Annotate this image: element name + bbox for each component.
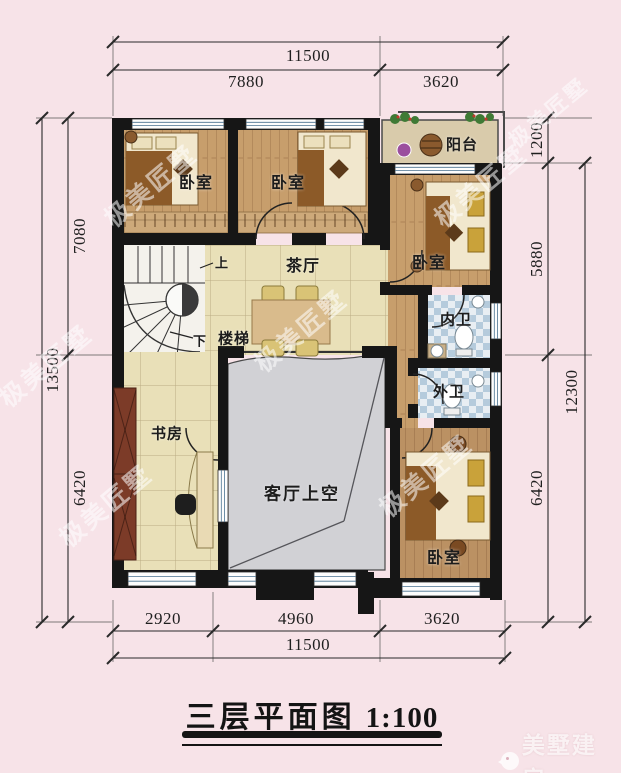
room-label-bedroom-right: 卧室 — [412, 249, 446, 273]
room-label-stairs: 楼梯 — [218, 328, 250, 349]
title-underline-thin — [182, 744, 442, 746]
dim-right-overall: 12300 — [562, 370, 582, 415]
room-label-bedroom-bottom-right: 卧室 — [427, 544, 461, 568]
dim-top-overall: 11500 — [286, 46, 330, 66]
window-top-3 — [324, 119, 364, 129]
dim-left-overall: 13500 — [43, 348, 63, 393]
stair-down-label: 下 — [193, 331, 207, 350]
window-bedroom4 — [402, 582, 480, 596]
drawing-title-text: 三层平面图 — [186, 701, 356, 734]
floorplan-page: 11500 7880 3620 2920 4960 3620 11500 135… — [0, 0, 621, 773]
drawing-scale: 1:100 — [366, 702, 439, 734]
window-bottom-study — [128, 572, 196, 586]
dim-top-left: 7880 — [228, 72, 264, 92]
living-void-area — [228, 352, 385, 570]
window-bottom-3 — [314, 572, 356, 586]
brand-logo: 美墅建房 — [498, 726, 621, 773]
window-right-bath2 — [491, 372, 501, 406]
window-void-wall — [218, 470, 228, 522]
window-top-2 — [246, 119, 316, 129]
drawing-title: 三层平面图1:100 — [182, 692, 442, 736]
room-label-outer-bath: 外卫 — [433, 381, 465, 402]
room-label-inner-bath: 内卫 — [440, 309, 472, 330]
window-right-bath1 — [491, 303, 501, 339]
brand-logo-text: 美墅建房 — [522, 726, 621, 773]
room-label-tea-hall: 茶厅 — [286, 252, 320, 276]
bed-bottom-right — [406, 436, 490, 556]
bed-top-middle — [298, 132, 366, 206]
bed-top-left — [125, 131, 198, 205]
dim-right-1200: 1200 — [527, 122, 547, 158]
stair-up-label: 上 — [215, 253, 229, 272]
dim-top-right: 3620 — [423, 72, 459, 92]
dim-left-top: 7080 — [70, 218, 90, 254]
window-balcony-wall — [395, 164, 475, 174]
room-label-living-void: 客厅上空 — [264, 480, 340, 505]
title-underline-thick — [182, 731, 442, 738]
window-bottom-2 — [228, 572, 256, 586]
dim-bottom-overall: 11500 — [286, 635, 330, 655]
dim-bottom-right: 3620 — [424, 609, 460, 629]
chick-icon — [498, 748, 522, 772]
room-label-study: 书房 — [151, 423, 183, 444]
dim-bottom-left: 2920 — [145, 609, 181, 629]
dim-right-5880: 5880 — [527, 241, 547, 277]
room-label-bedroom-top-middle: 卧室 — [271, 169, 305, 193]
room-label-bedroom-top-left: 卧室 — [179, 169, 213, 193]
window-top-1 — [132, 119, 224, 129]
dim-right-6420: 6420 — [527, 470, 547, 506]
dim-bottom-mid: 4960 — [278, 609, 314, 629]
floorplan-drawing — [0, 0, 621, 773]
dim-left-bottom: 6420 — [70, 470, 90, 506]
room-label-balcony: 阳台 — [446, 134, 478, 155]
